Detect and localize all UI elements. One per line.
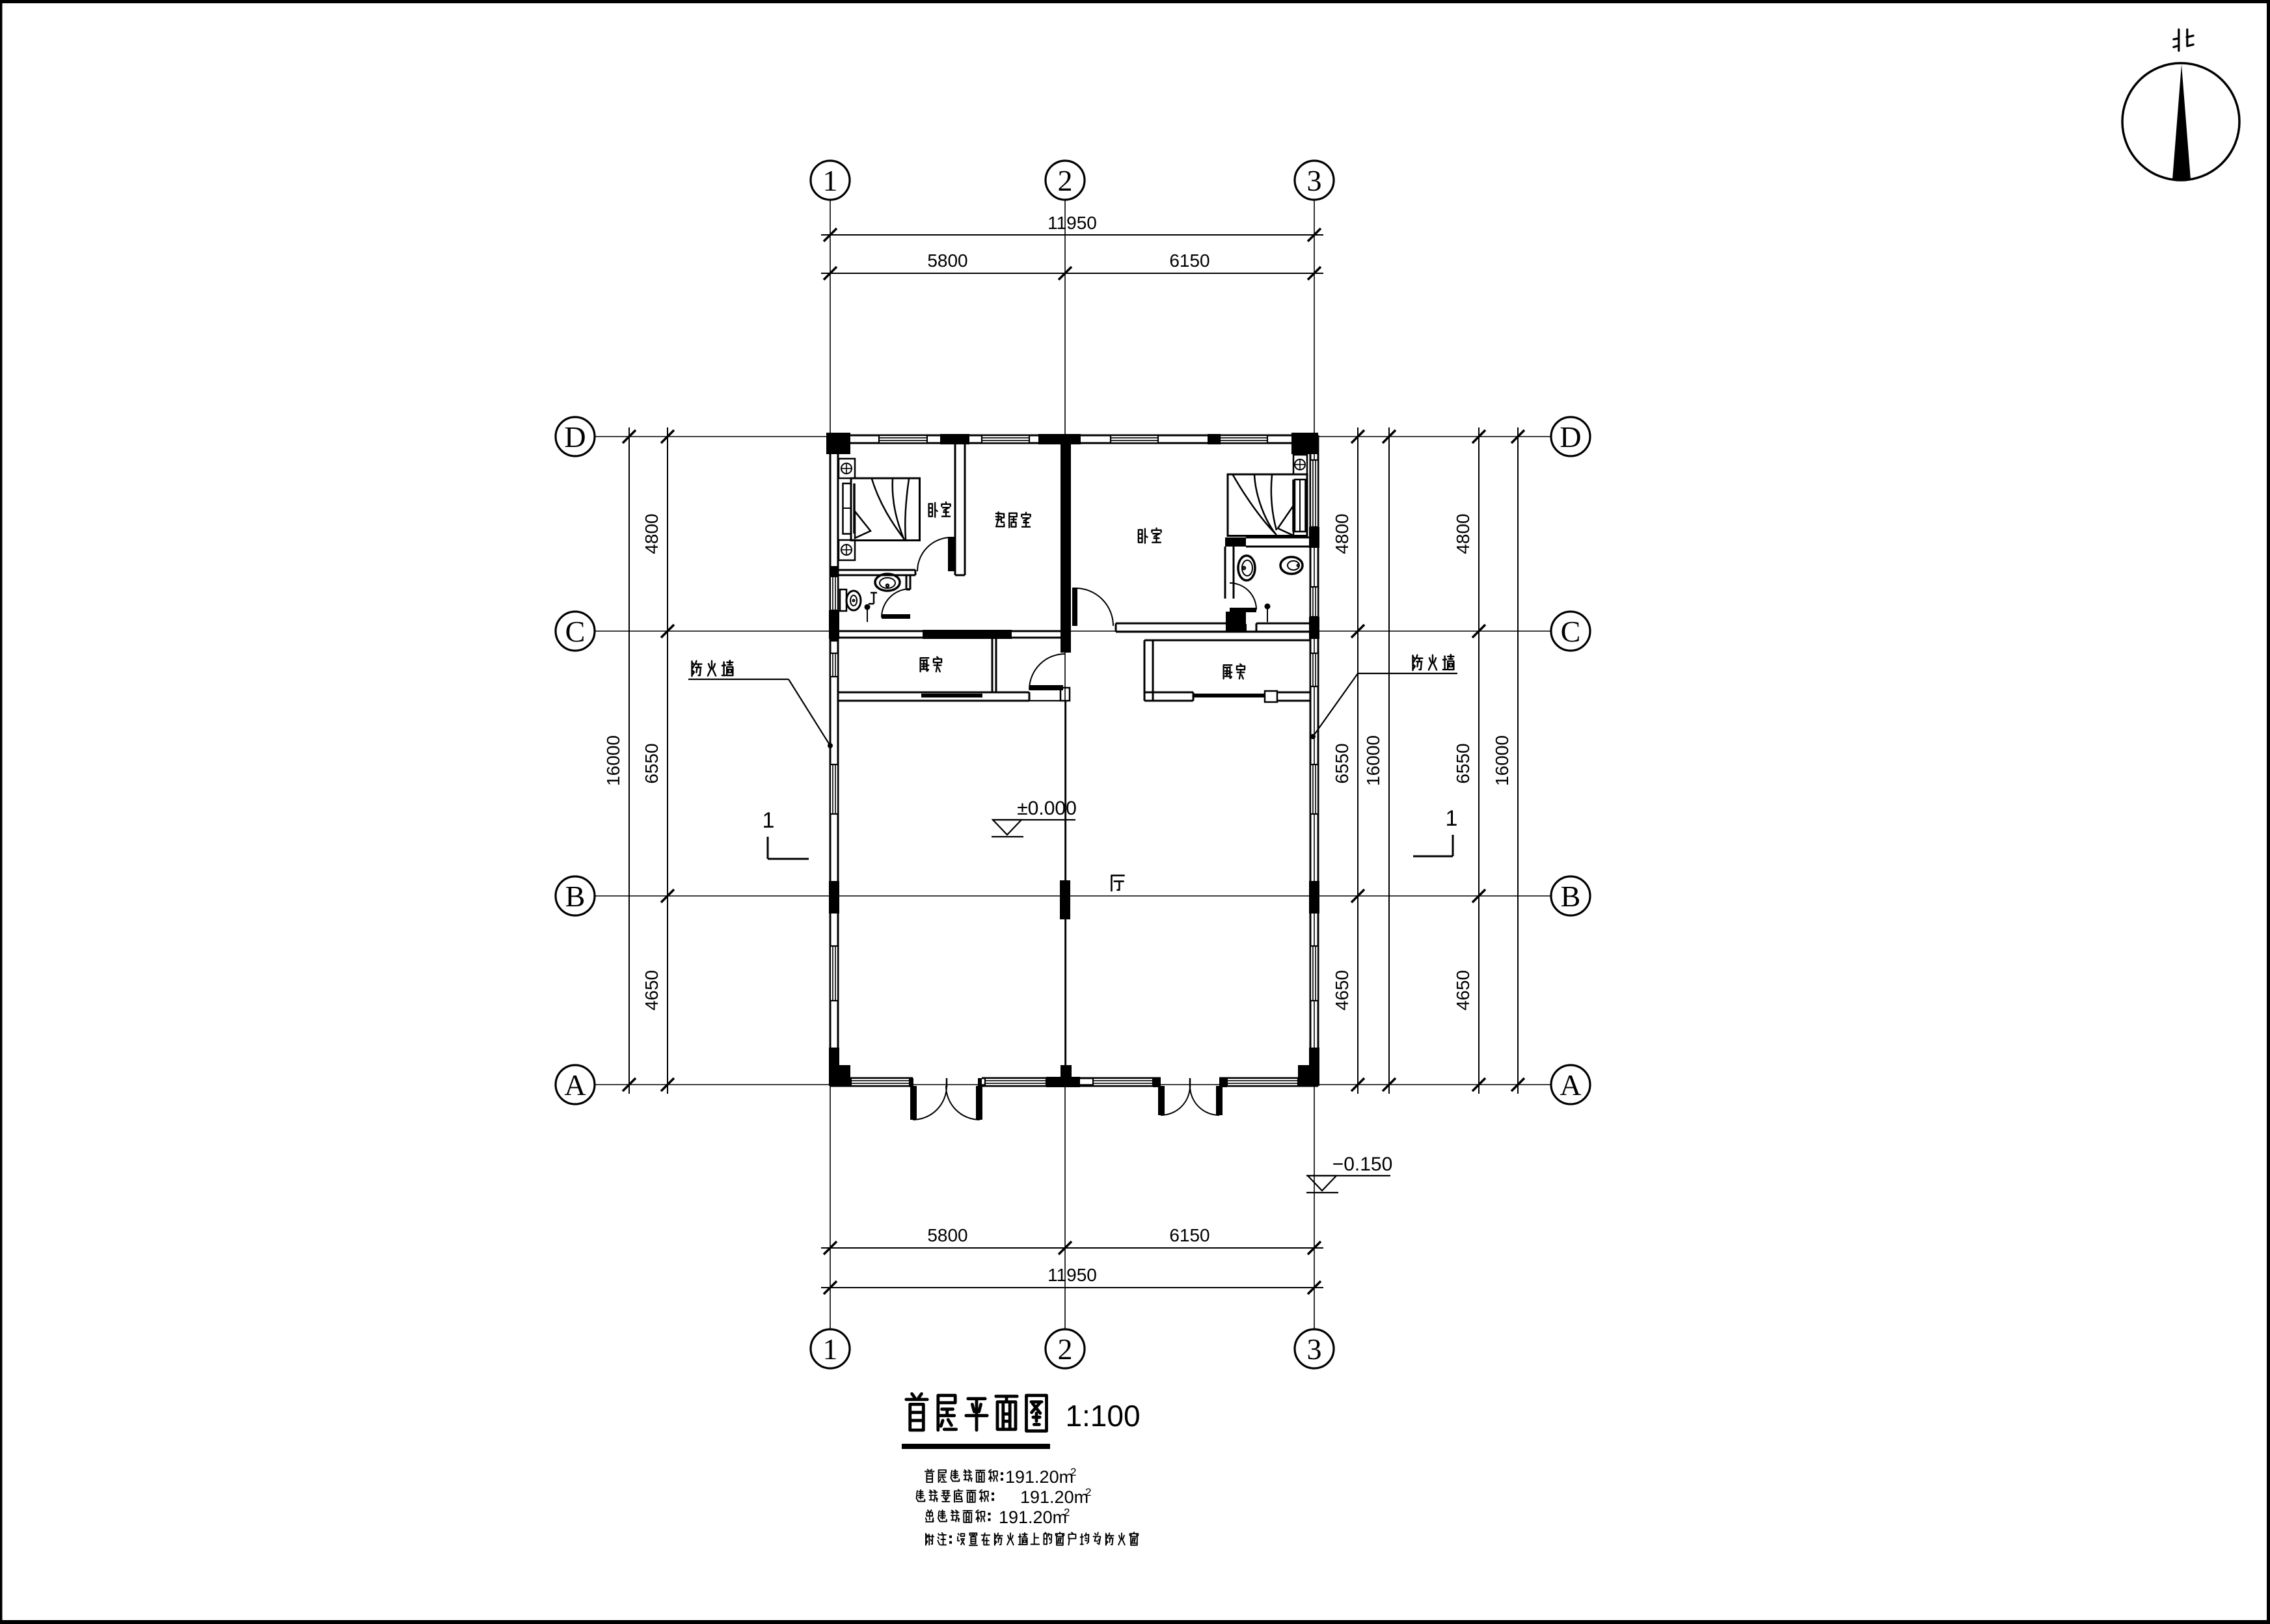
svg-text:2: 2 — [1085, 1486, 1091, 1498]
svg-text:1: 1 — [1446, 806, 1458, 831]
svg-text:1: 1 — [823, 1333, 838, 1366]
svg-text:A: A — [1560, 1068, 1581, 1102]
svg-text:B: B — [565, 880, 586, 913]
svg-text:6550: 6550 — [1453, 743, 1473, 783]
svg-text:4800: 4800 — [1332, 513, 1352, 554]
svg-text:11950: 11950 — [1047, 213, 1097, 233]
svg-text:D: D — [1560, 420, 1581, 453]
svg-text:−0.150: −0.150 — [1332, 1154, 1393, 1175]
svg-text:2: 2 — [1064, 1506, 1070, 1519]
svg-text:D: D — [564, 420, 586, 453]
svg-text:C: C — [1561, 615, 1581, 648]
svg-text:4650: 4650 — [1453, 970, 1473, 1010]
svg-text:2: 2 — [1070, 1466, 1076, 1478]
svg-text:1:100: 1:100 — [1065, 1399, 1140, 1433]
svg-text:6550: 6550 — [642, 743, 662, 783]
svg-text:16000: 16000 — [603, 735, 623, 786]
svg-text:A: A — [564, 1068, 586, 1102]
svg-text:4650: 4650 — [642, 970, 662, 1010]
svg-text:±0.000: ±0.000 — [1017, 798, 1077, 819]
svg-text:3: 3 — [1307, 1333, 1322, 1366]
svg-text:16000: 16000 — [1363, 735, 1383, 786]
svg-text:2: 2 — [1058, 164, 1073, 197]
svg-text:C: C — [565, 615, 586, 648]
svg-text:1: 1 — [763, 808, 775, 833]
svg-text:4800: 4800 — [642, 513, 662, 554]
svg-text:11950: 11950 — [1047, 1265, 1097, 1285]
svg-text:2: 2 — [1058, 1333, 1073, 1366]
svg-text:5800: 5800 — [927, 1225, 967, 1245]
svg-text:6150: 6150 — [1169, 250, 1209, 271]
svg-text:1: 1 — [823, 164, 838, 197]
svg-text:4650: 4650 — [1332, 970, 1352, 1010]
svg-text:6550: 6550 — [1332, 743, 1352, 783]
svg-text:4800: 4800 — [1453, 513, 1473, 554]
svg-text:191.20m: 191.20m — [1005, 1467, 1074, 1487]
svg-text:16000: 16000 — [1492, 735, 1512, 786]
svg-text:5800: 5800 — [927, 250, 967, 271]
svg-text:3: 3 — [1307, 164, 1322, 197]
svg-text:191.20m: 191.20m — [1020, 1487, 1088, 1507]
svg-text:B: B — [1561, 880, 1581, 913]
svg-text:6150: 6150 — [1169, 1225, 1209, 1245]
svg-text:191.20m: 191.20m — [999, 1508, 1067, 1527]
